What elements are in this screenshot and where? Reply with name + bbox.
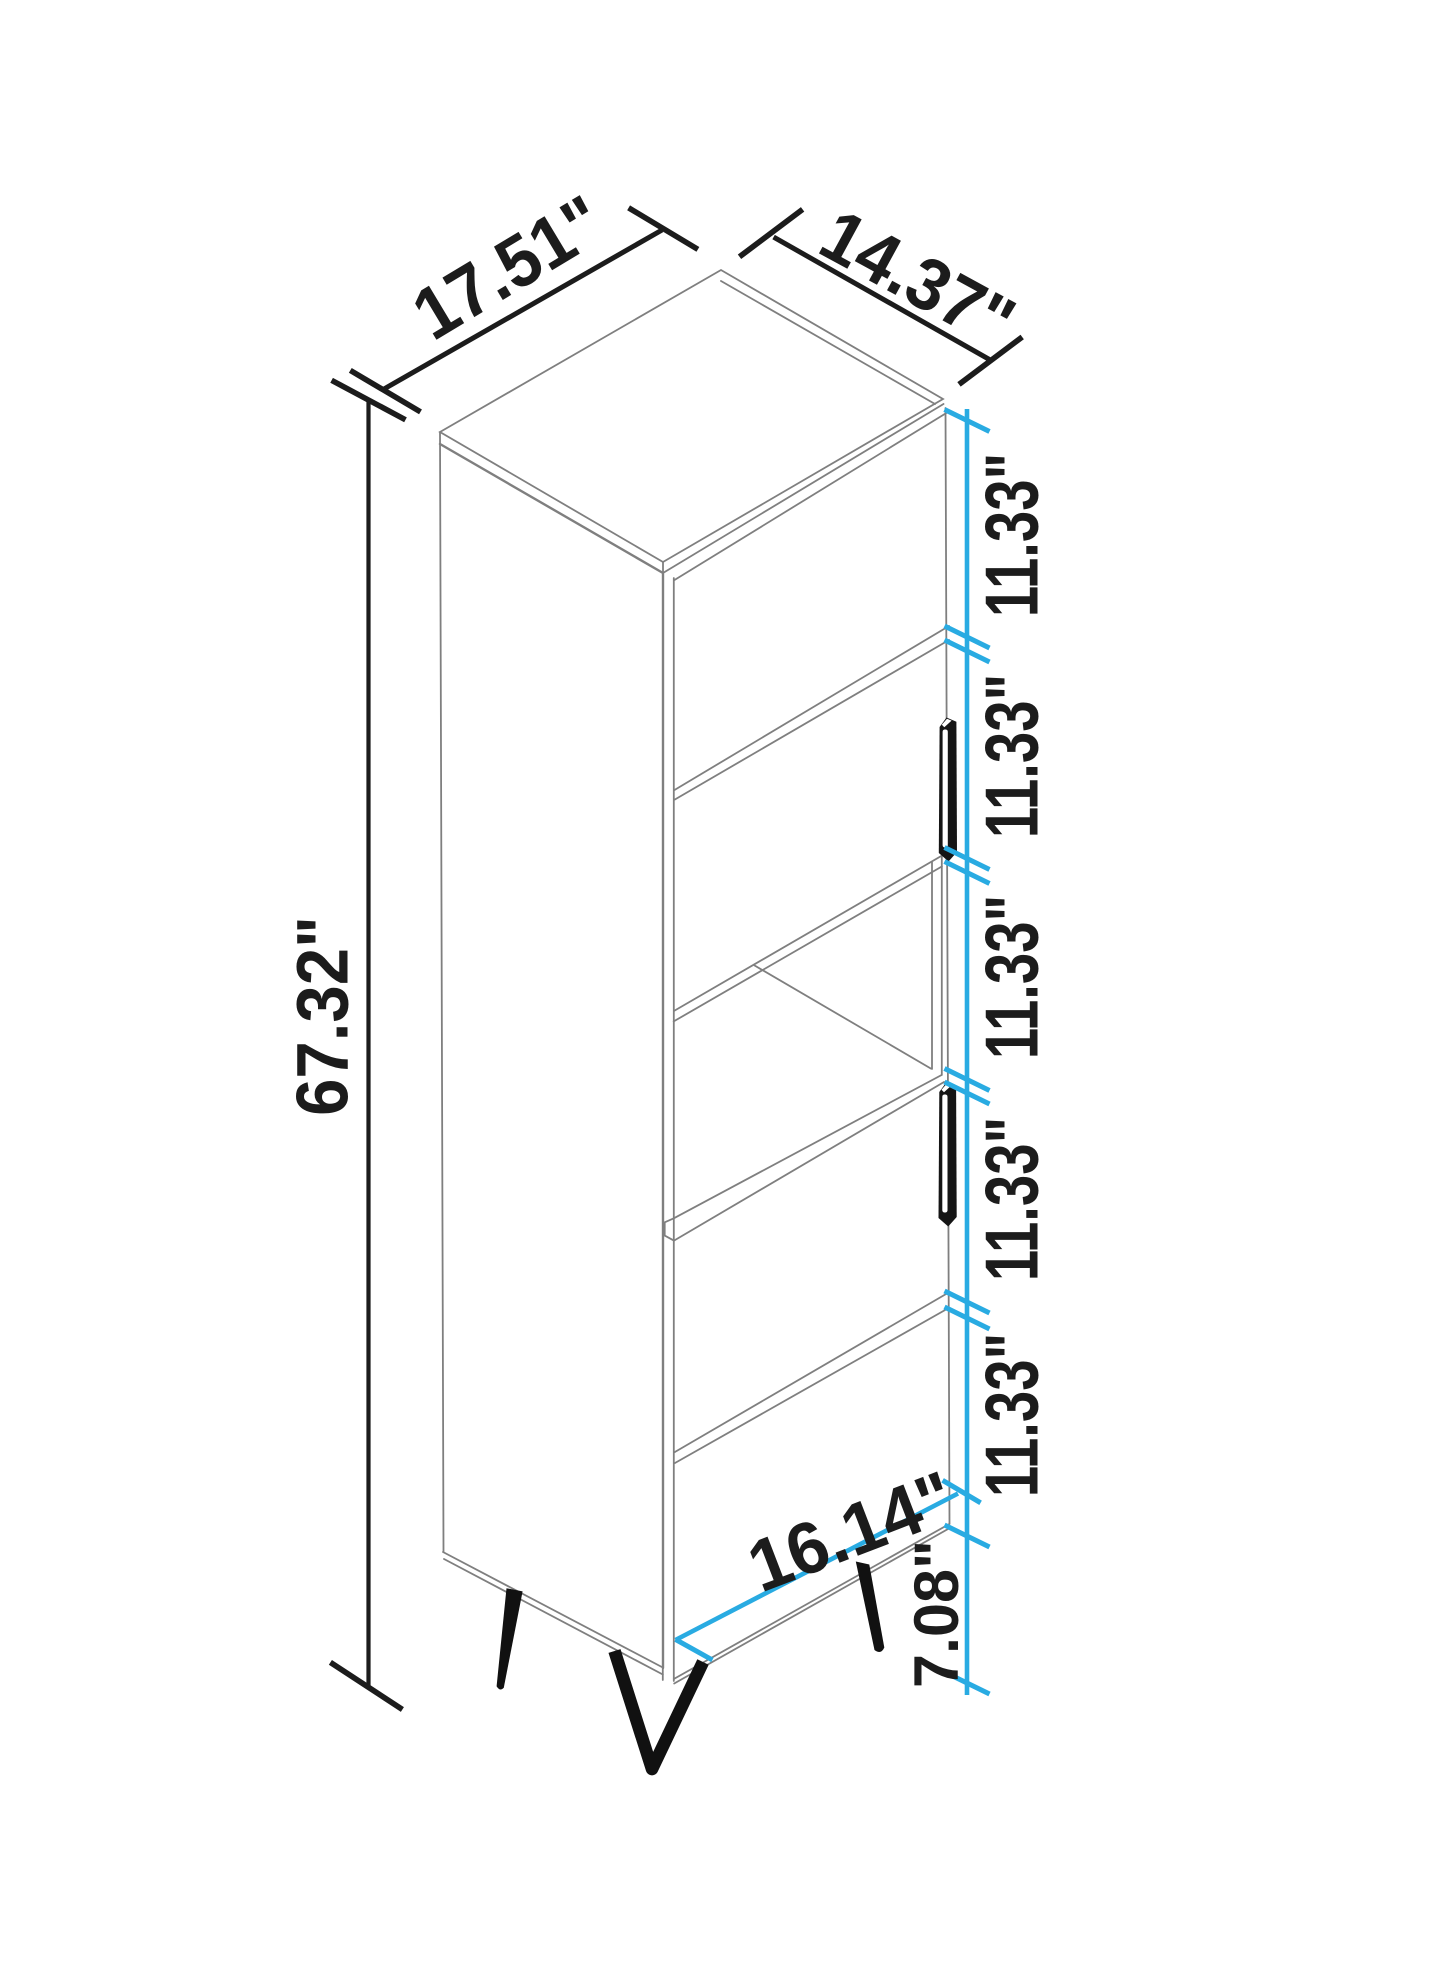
svg-text:11.33": 11.33" [970, 1117, 1054, 1281]
svg-text:11.33": 11.33" [970, 453, 1054, 617]
svg-text:11.33": 11.33" [970, 674, 1054, 838]
svg-text:67.32": 67.32" [282, 916, 363, 1116]
svg-text:11.33": 11.33" [970, 1333, 1054, 1497]
svg-text:7.08": 7.08" [902, 1540, 972, 1688]
svg-text:11.33": 11.33" [970, 895, 1054, 1059]
